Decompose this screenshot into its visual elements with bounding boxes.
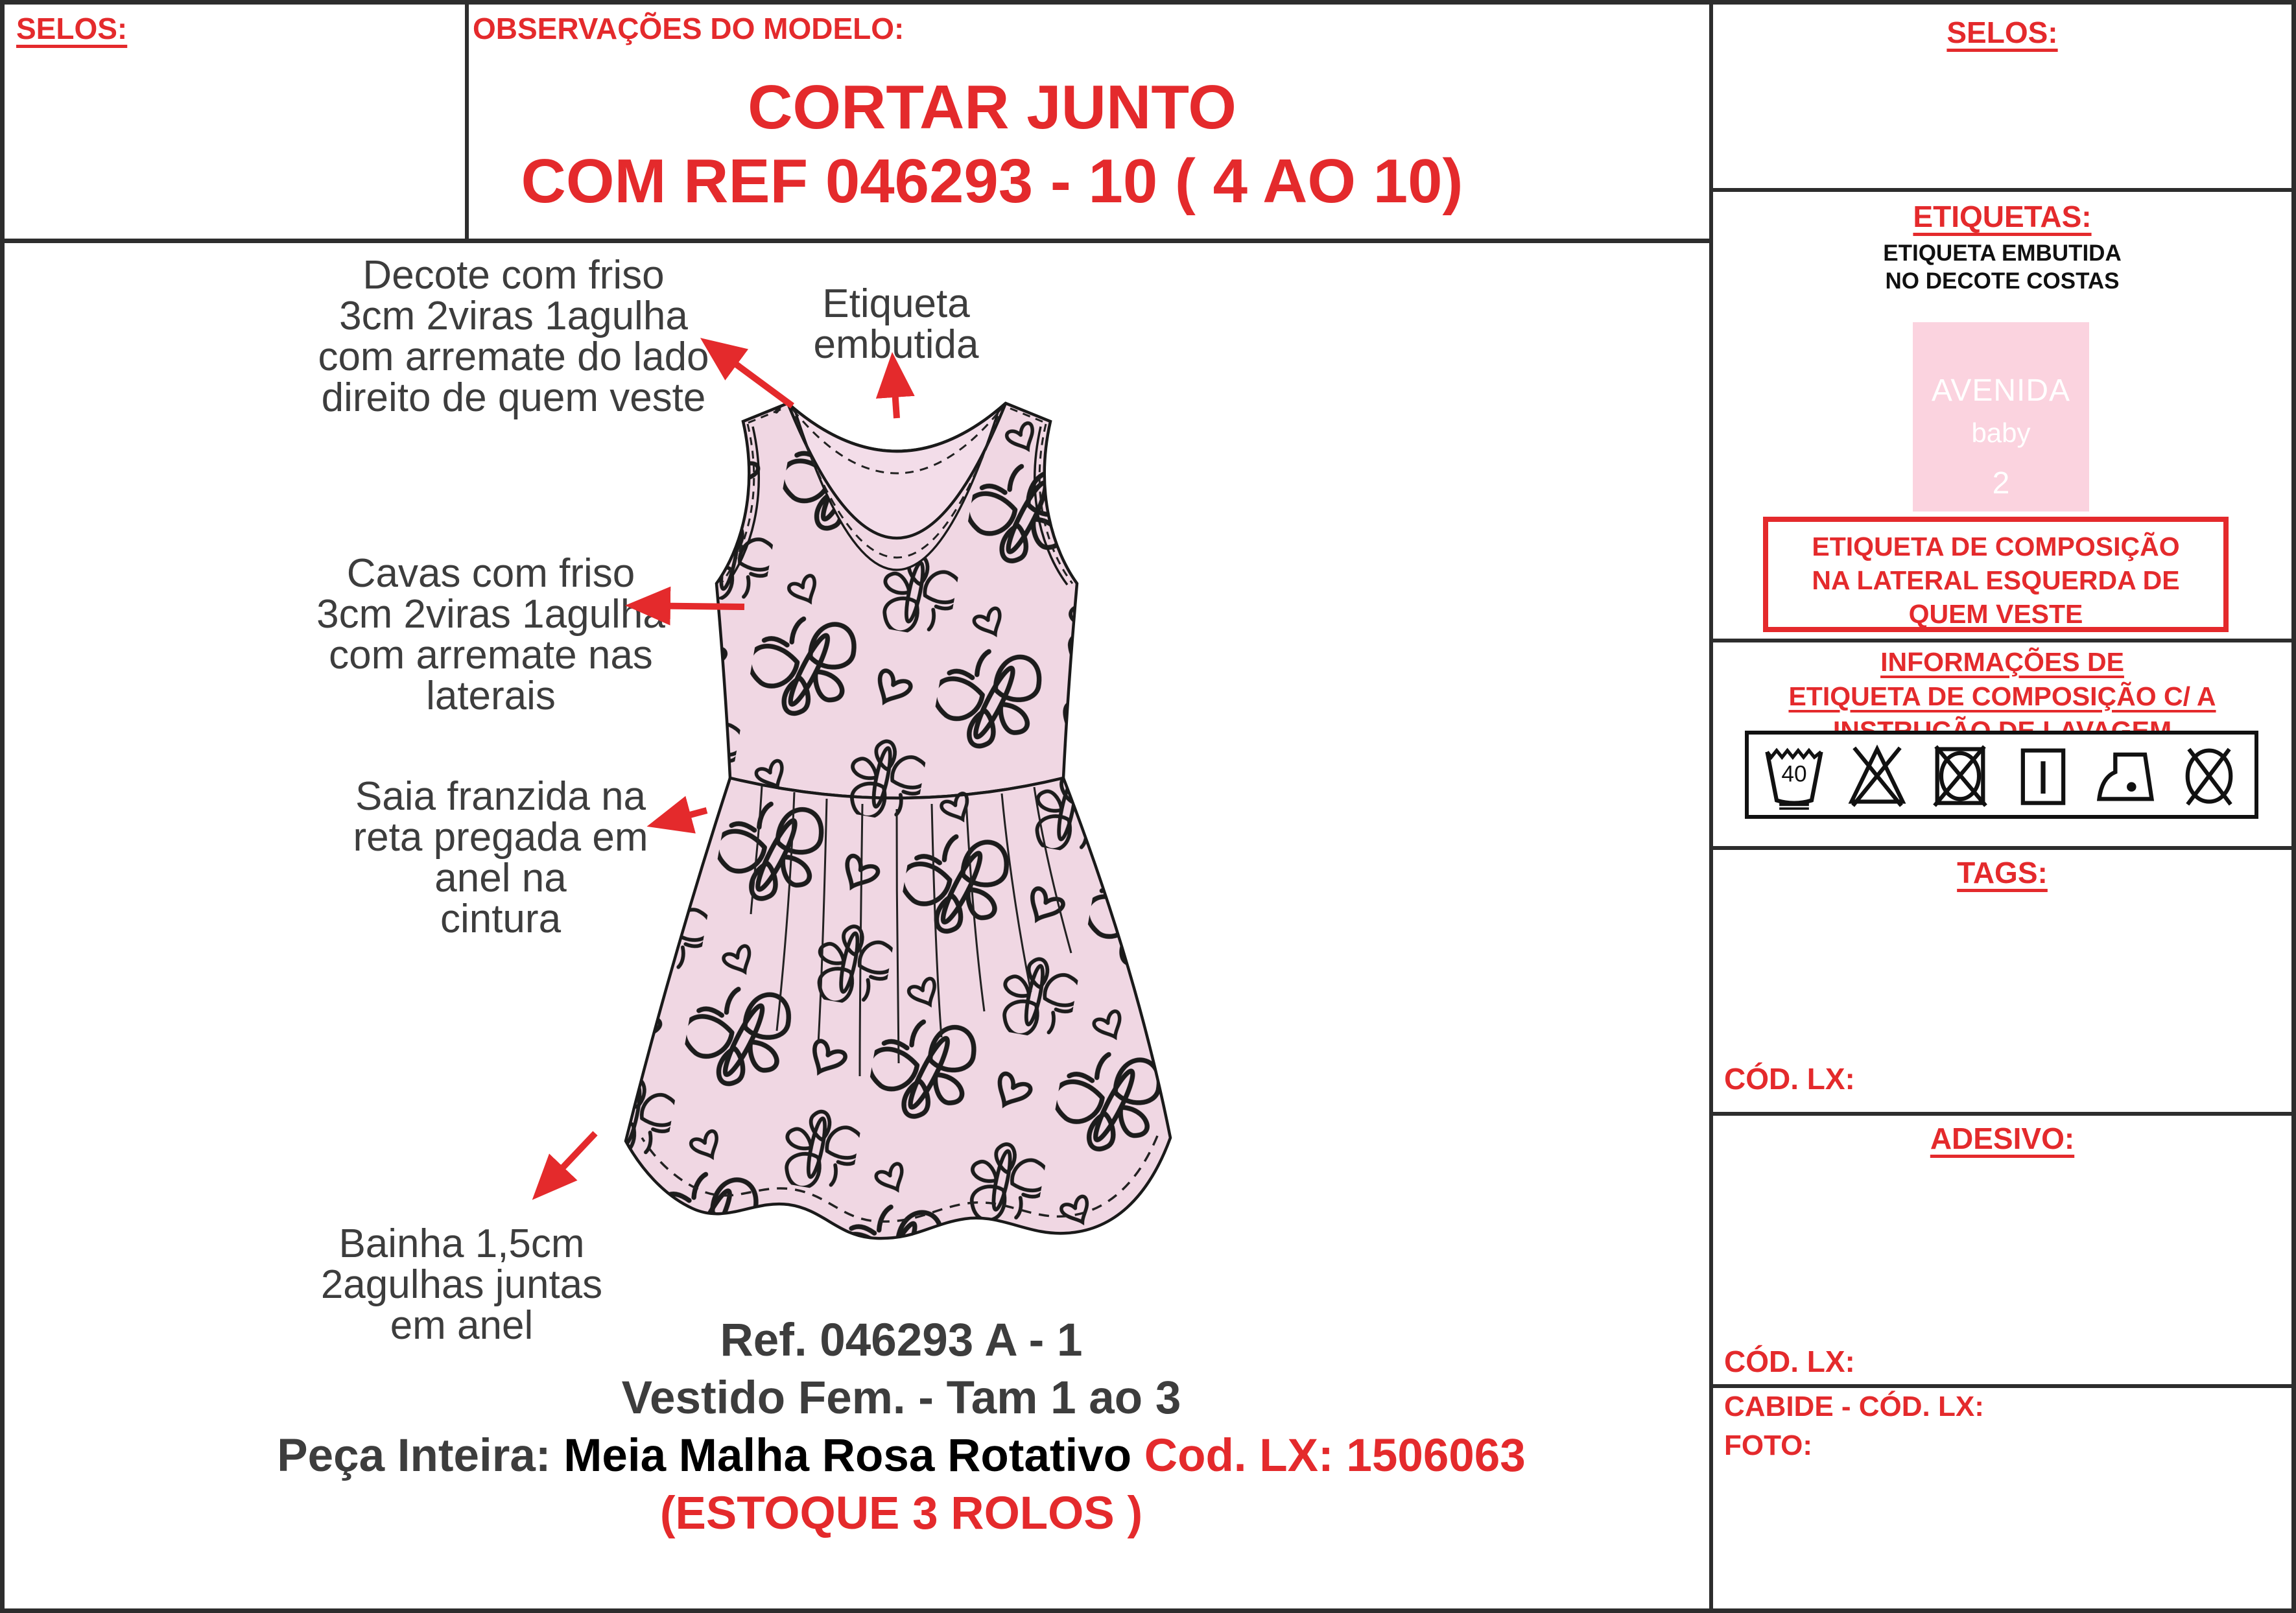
- line-dry-icon: [2009, 740, 2077, 810]
- adesivo-cod-lx: CÓD. LX:: [1724, 1344, 2282, 1379]
- fabric-line: Peça Inteira: Meia Malha Rosa Rotativo C…: [65, 1427, 1738, 1485]
- composition-label-box: ETIQUETA DE COMPOSIÇÃO NA LATERAL ESQUER…: [1763, 517, 2229, 632]
- brand-label-swatch: AVENIDA baby 2: [1913, 322, 2089, 512]
- sidebar-tags-header: TAGS:: [1713, 855, 2291, 890]
- sidebar-selos-header: SELOS:: [1713, 15, 2291, 50]
- sidebar-divider-5: [1713, 1384, 2291, 1388]
- selos-left-header: SELOS:: [16, 11, 127, 46]
- arrow-saia: [656, 810, 707, 824]
- stock-note: (ESTOQUE 3 ROLOS ): [65, 1485, 1738, 1542]
- observacoes-header: OBSERVAÇÕES DO MODELO:: [473, 11, 904, 46]
- composition-line: QUEM VESTE: [1768, 597, 2223, 631]
- fabric-material: Meia Malha Rosa Rotativo: [563, 1430, 1144, 1481]
- etiqueta-embutida-note: ETIQUETA EMBUTIDA NO DECOTE COSTAS: [1713, 239, 2291, 295]
- sidebar-adesivo-header: ADESIVO:: [1713, 1121, 2291, 1156]
- tech-sheet-page: SELOS: OBSERVAÇÕES DO MODELO: CORTAR JUN…: [0, 0, 2296, 1613]
- composition-line: ETIQUETA DE COMPOSIÇÃO: [1768, 530, 2223, 563]
- do-not-bleach-icon: [1843, 740, 1911, 810]
- sidebar-etiquetas-header: ETIQUETAS:: [1713, 199, 2291, 234]
- care-info-line: ETIQUETA DE COMPOSIÇÃO C/ A: [1713, 679, 2291, 714]
- reference-block: Ref. 046293 A - 1 Vestido Fem. - Tam 1 a…: [65, 1312, 1738, 1542]
- fabric-label: Peça Inteira:: [277, 1430, 563, 1481]
- brand-size: 2: [1993, 465, 2010, 501]
- product-description: Vestido Fem. - Tam 1 ao 3: [65, 1369, 1738, 1427]
- arrow-bainha: [539, 1133, 595, 1193]
- arrow-cavas: [635, 606, 744, 607]
- arrow-decote: [708, 344, 792, 406]
- svg-text:40: 40: [1781, 761, 1806, 786]
- brand-name: AVENIDA: [1932, 373, 2070, 408]
- tags-cod-lx: CÓD. LX:: [1724, 1061, 2282, 1096]
- etiqueta-note-line: ETIQUETA EMBUTIDA: [1713, 239, 2291, 267]
- care-symbols-strip: 40: [1745, 731, 2258, 819]
- sidebar-divider-1: [1713, 188, 2291, 192]
- cabide-cod-lx: CABIDE - CÓD. LX:: [1724, 1391, 2282, 1423]
- iron-low-heat-icon: [2092, 740, 2160, 810]
- composition-line: NA LATERAL ESQUERDA DE: [1768, 563, 2223, 597]
- ref-number: Ref. 046293 A - 1: [65, 1312, 1738, 1369]
- sidebar-divider-3: [1713, 846, 2291, 850]
- foto-label: FOTO:: [1724, 1430, 2282, 1462]
- brand-sub: baby: [1971, 418, 2030, 449]
- title-line-2: COM REF 046293 - 10 ( 4 AO 10): [460, 145, 1524, 218]
- sidebar-divider-4: [1713, 1112, 2291, 1116]
- do-not-dry-clean-icon: [2175, 740, 2243, 810]
- etiqueta-note-line: NO DECOTE COSTAS: [1713, 267, 2291, 295]
- title-line-1: CORTAR JUNTO: [460, 71, 1524, 145]
- do-not-tumble-dry-icon: [1926, 740, 1994, 810]
- wash-40-icon: 40: [1760, 740, 1828, 810]
- fabric-cod-lx: Cod. LX: 1506063: [1144, 1430, 1526, 1481]
- sidebar-divider-2: [1713, 639, 2291, 642]
- cut-instruction-title: CORTAR JUNTO COM REF 046293 - 10 ( 4 AO …: [460, 71, 1524, 218]
- arrow-etiqueta: [893, 362, 897, 418]
- care-info-line: INFORMAÇÕES DE: [1713, 645, 2291, 679]
